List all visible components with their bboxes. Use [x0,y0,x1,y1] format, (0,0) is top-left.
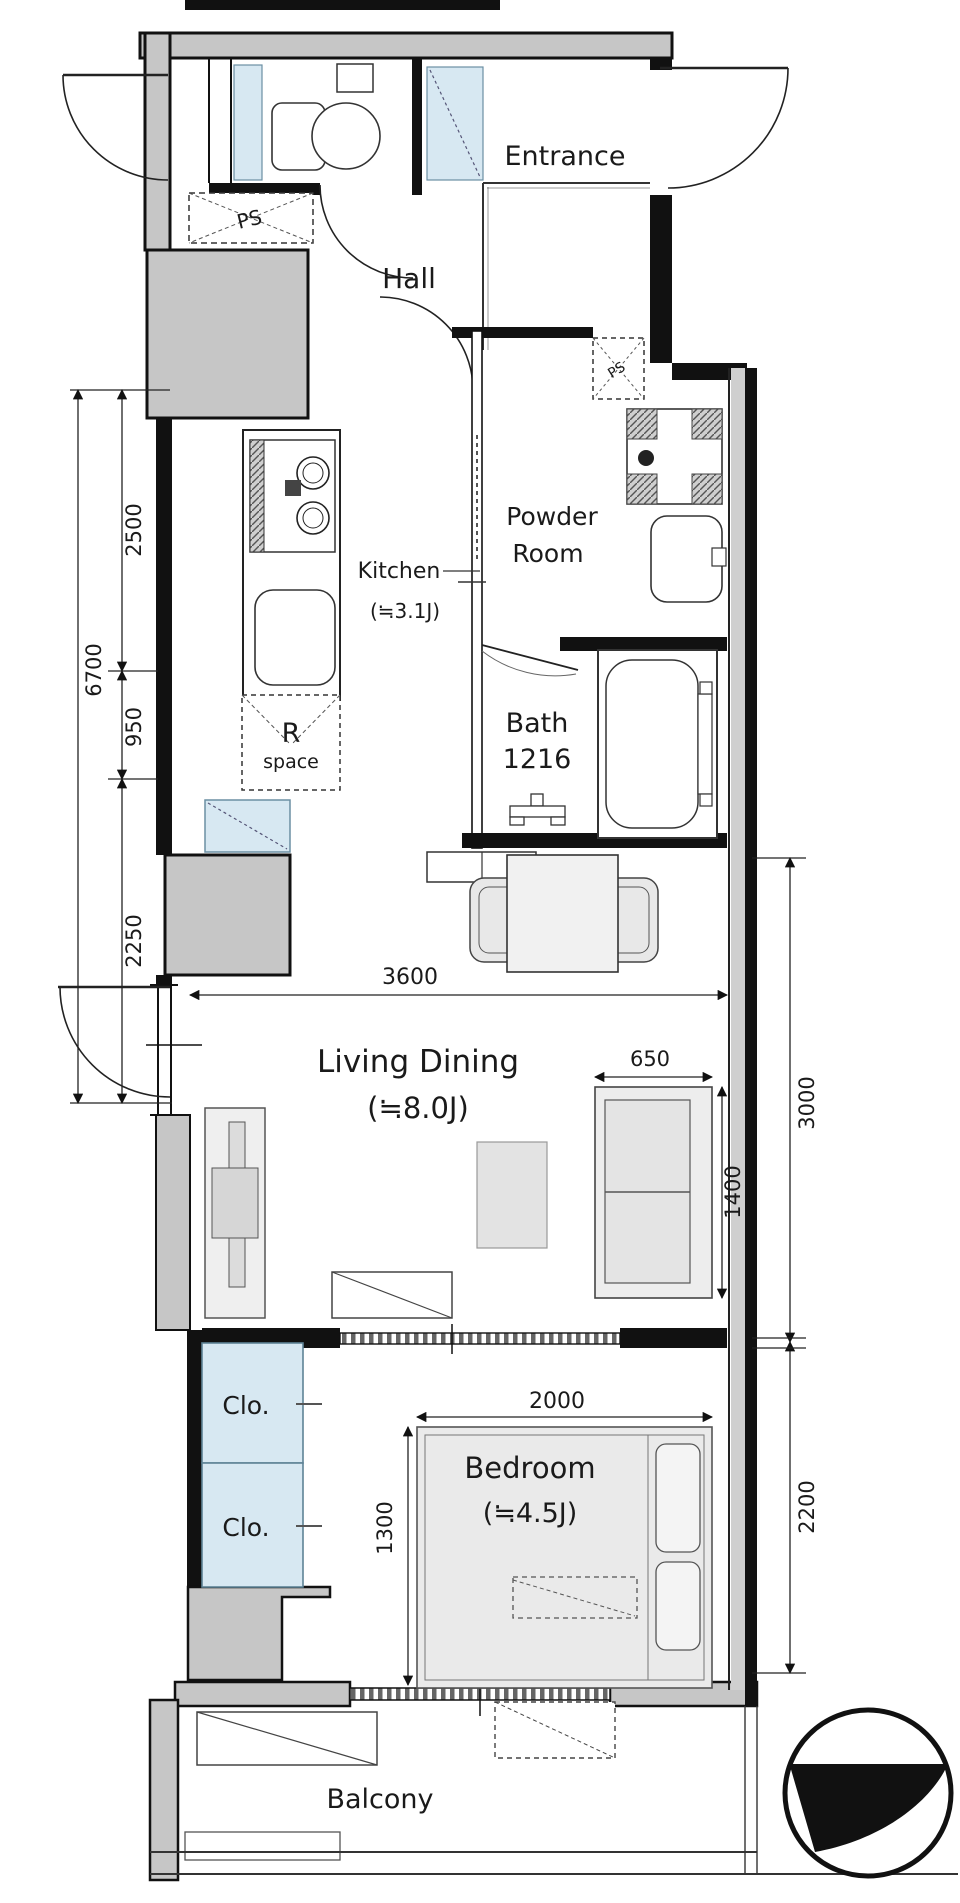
wall-left-upper [145,33,170,250]
washer-drain [638,450,654,466]
vanity-faucet [712,548,726,566]
closet-lower-label: Clo. [222,1513,269,1542]
wall-left-kitchen [156,418,172,855]
entrance-label: Entrance [505,141,626,172]
entrance-door [660,68,788,188]
bedroom-label-1: Bedroom [464,1451,595,1485]
wall-block-a [147,250,308,418]
kitchen-label-2: (≒3.1J) [370,599,440,623]
bath-label-2: 1216 [503,744,572,775]
powder-bath-divider [560,637,727,651]
powder-left-wall [472,331,482,848]
living-label-1: Living Dining [317,1044,519,1080]
kitchen-label-1: Kitchen [358,559,441,584]
bath-faucet [510,794,565,825]
dim-3000: 3000 [795,1076,819,1129]
dim-1300: 1300 [373,1501,397,1554]
pillow-1 [656,1444,700,1552]
dim-1400: 1400 [721,1165,745,1218]
dining-table [507,855,618,972]
exterior-door-left [58,987,170,1097]
entrance-step-lines [483,183,650,350]
floor-plan-drawing: PS PS [0,0,960,1903]
rspace-label-2: space [263,751,319,773]
wall-left-living [156,1115,190,1330]
hall-door-arc [380,297,473,390]
powder-label-1: Powder [506,502,598,531]
balcony-label: Balcony [326,1784,433,1815]
kitchen-counter [243,430,340,700]
bath-label-1: Bath [506,708,569,739]
burner-2 [297,502,329,534]
toilet-side-panel [234,65,262,180]
pipe-space-hall: PS [189,193,313,243]
kitchen-sink [255,590,335,685]
hall-label: Hall [382,262,436,295]
dim-2000: 2000 [529,1389,585,1414]
washer-pan [627,409,722,504]
vanity-sink [651,516,726,602]
top-border-bar [185,0,500,10]
closets [202,1343,322,1587]
living-label-2: (≒8.0J) [367,1091,469,1125]
bedroom-label-2: (≒4.5J) [483,1498,578,1529]
closet-upper-label: Clo. [222,1391,269,1420]
dim-650: 650 [630,1047,670,1071]
powder-label-2: Room [512,539,583,568]
dim-3600: 3600 [382,965,438,990]
tv-board [205,1108,265,1318]
wall-right-band [731,368,745,1690]
pillow-2 [656,1562,700,1650]
compass-icon [785,1710,951,1876]
burner-1 [297,457,329,489]
wall-right-outer [745,368,757,1706]
wall-left-bedroom [187,1330,202,1590]
balcony-equipment [185,1702,615,1860]
dim-6700: 6700 [82,643,106,696]
toilet-right-wall [412,58,422,183]
dim-950: 950 [122,707,146,747]
dim-2200: 2200 [795,1480,819,1533]
bedroom-sliding-door [340,1333,620,1344]
kitchen-side-window [205,800,290,852]
wall-right-entrance [650,195,672,363]
wall-top [140,33,672,58]
pipe-space-powder: PS [593,338,644,399]
living-table [477,1142,547,1248]
dim-2250: 2250 [122,914,146,967]
bath-door-arc [482,651,576,676]
bathtub [598,650,717,838]
wall-block-b [165,855,290,975]
toilet-bowl [312,103,380,169]
floor-hatch [332,1272,452,1318]
toilet-tank [337,64,373,92]
wall-block-c [188,1587,330,1680]
entrance-storage [427,67,483,180]
floor-plan: PS PS [0,0,960,1903]
rspace-label-1: R [282,718,301,749]
balcony-drain [185,1832,340,1860]
dim-2500: 2500 [122,503,146,556]
sofa [595,1087,712,1298]
grill [285,480,301,496]
toilet-bottom-wall-2 [412,183,422,195]
